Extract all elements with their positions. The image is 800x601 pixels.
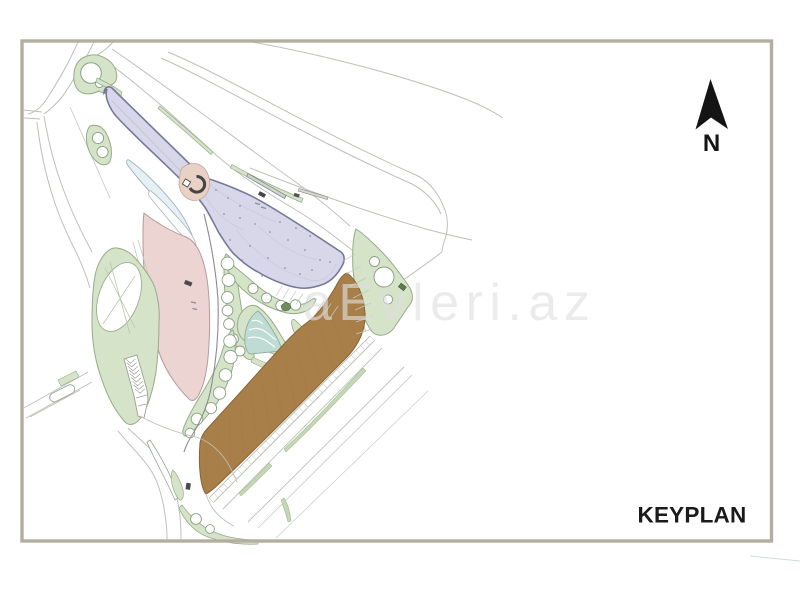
svg-text:N: N	[703, 130, 720, 157]
svg-text:aEvleri.az: aEvleri.az	[303, 274, 596, 332]
svg-text:KEYPLAN: KEYPLAN	[638, 503, 747, 528]
